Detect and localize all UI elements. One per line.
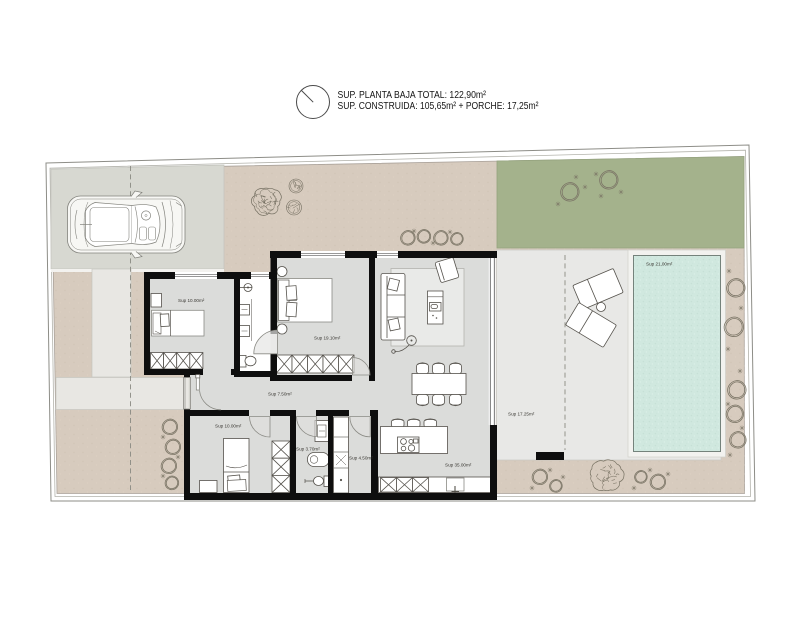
svg-text:Sup 35.00m²: Sup 35.00m² [445,463,472,468]
svg-text:Sup 10.00m²: Sup 10.00m² [178,298,205,303]
svg-text:Sup 10.00m²: Sup 10.00m² [215,424,242,429]
svg-text:SUP. CONSTRUIDA: 105,65m² + PO: SUP. CONSTRUIDA: 105,65m² + PORCHE: 17,2… [338,101,540,112]
svg-text:Sup 19.10m²: Sup 19.10m² [314,336,341,341]
svg-text:Sup 3.70m²: Sup 3.70m² [296,447,320,452]
svg-text:Sup 7.50m²: Sup 7.50m² [268,392,292,397]
svg-text:Sup 17.25m²: Sup 17.25m² [508,412,535,417]
svg-text:Sup 4.50m²: Sup 4.50m² [349,456,373,461]
svg-text:Sup 21,00m²: Sup 21,00m² [646,262,673,267]
svg-text:SUP. PLANTA BAJA TOTAL: 122,90: SUP. PLANTA BAJA TOTAL: 122,90m² [338,90,487,101]
